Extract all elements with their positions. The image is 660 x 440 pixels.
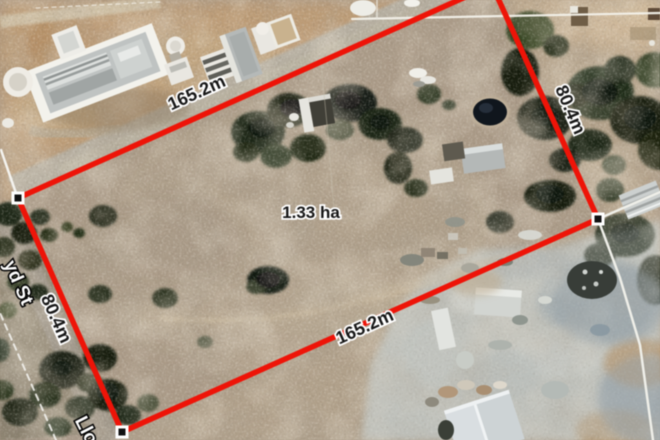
svg-text:1.33 ha: 1.33 ha [282,203,340,222]
